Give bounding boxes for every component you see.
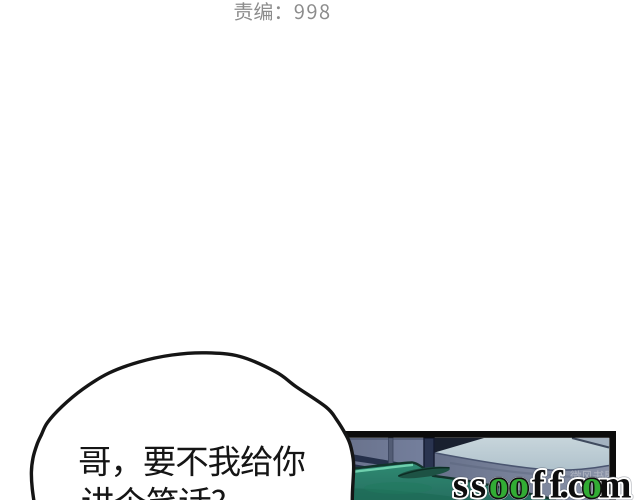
svg-text:m: m xyxy=(599,463,632,500)
svg-text:o: o xyxy=(509,463,529,500)
svg-text:s: s xyxy=(453,463,468,500)
svg-text:s: s xyxy=(471,463,486,500)
svg-text:f: f xyxy=(532,463,546,500)
svg-text:o: o xyxy=(489,463,509,500)
